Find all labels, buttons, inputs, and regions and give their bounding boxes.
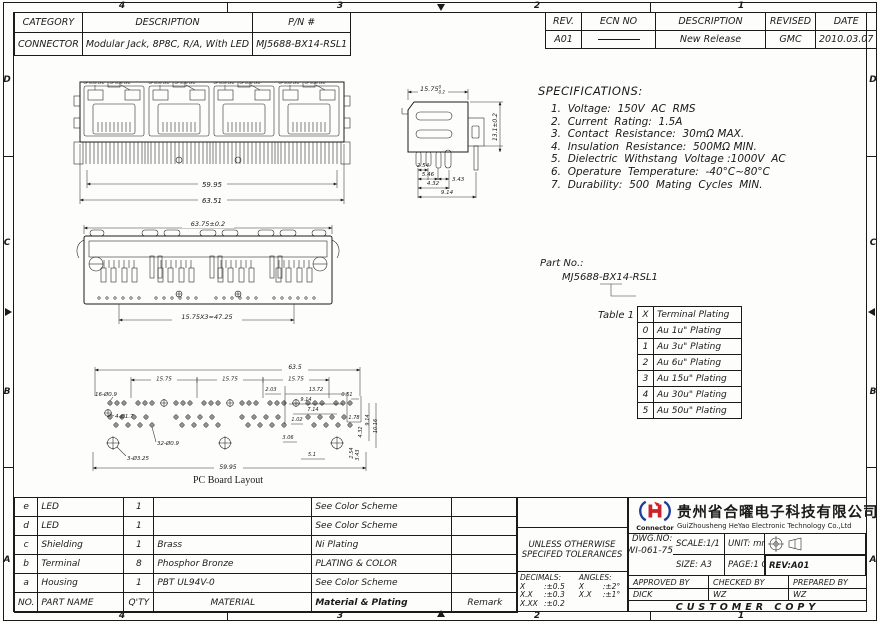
signature-grid: APPROVED BY CHECKED BY PREPARED BY DICK … xyxy=(629,576,866,601)
spec-item: 3. Contact Resistance: 30mΩ MAX. xyxy=(551,128,786,141)
table1-val: Au 1u" Plating xyxy=(654,323,742,339)
approved-by-value: DICK xyxy=(629,589,709,601)
table1-key: 4 xyxy=(638,387,654,403)
center-mark-arrow xyxy=(437,4,445,11)
svg-text:OPTION LED: OPTION LED xyxy=(305,81,326,85)
spec-item: 6. Operature Temperature: -40°C~80°C xyxy=(551,166,786,179)
table1-key: 1 xyxy=(638,339,654,355)
zone-tick xyxy=(3,467,13,468)
zone-left-d: D xyxy=(2,75,12,85)
rev-cell: REV:A01 xyxy=(765,555,866,576)
svg-text:OPTION LED: OPTION LED xyxy=(175,81,196,85)
zone-bottom-2: 2 xyxy=(532,611,542,621)
bom-header-plating: Material & Plating xyxy=(312,593,452,613)
bom-remark xyxy=(452,517,518,536)
part-no-label: Part No.: xyxy=(540,258,584,269)
zone-tick xyxy=(227,2,228,12)
revised-header: REVISED xyxy=(766,13,816,31)
pcb-layout-drawing: 63.5 15.75 15.75 15.75 59.95 2.03 13.72 … xyxy=(85,356,380,488)
bom-material: Phosphor Bronze xyxy=(154,555,312,574)
rear-view-drawing: 63.75±0.2 15.75X3=47.25 xyxy=(62,216,354,340)
bom-plating: PLATING & COLOR xyxy=(312,555,452,574)
bom-row: e LED 1 See Color Scheme xyxy=(15,498,518,517)
bom-no: b xyxy=(15,555,38,574)
svg-text:OPTION LED: OPTION LED xyxy=(110,81,131,85)
zone-top-1: 1 xyxy=(736,1,746,11)
tolerance-spacer xyxy=(517,498,627,528)
size-cell: SIZE: A3 xyxy=(673,555,725,576)
prepared-by-label: PREPARED BY xyxy=(789,576,866,589)
table1-val: Au 6u" Plating xyxy=(654,355,742,371)
table1-key: 0 xyxy=(638,323,654,339)
part-no-leader xyxy=(556,282,676,308)
spec-item: 4. Insulation Resistance: 500MΩ MIN. xyxy=(551,141,786,154)
bom-header-remark: Remark xyxy=(452,593,518,613)
bom-row: c Shielding 1 Brass Ni Plating xyxy=(15,536,518,555)
approved-by-label: APPROVED BY xyxy=(629,576,709,589)
bom-part: Shielding xyxy=(38,536,124,555)
tolerance-block: UNLESS OTHERWISE SPECIFED TOLERANCES DEC… xyxy=(516,497,628,612)
bom-material xyxy=(154,517,312,536)
rear-dim-pitch: 15.75X3=47.25 xyxy=(181,313,232,321)
zone-right-d: D xyxy=(868,75,878,85)
tolerance-title: UNLESS OTHERWISE SPECIFED TOLERANCES xyxy=(517,528,627,572)
specifications-title: SPECIFICATIONS: xyxy=(538,84,786,98)
checked-by-label: CHECKED BY xyxy=(709,576,789,589)
bom-qty: 1 xyxy=(124,574,154,593)
zone-tick xyxy=(650,612,651,621)
bom-qty: 1 xyxy=(124,517,154,536)
bom-remark xyxy=(452,555,518,574)
side-view-drawing: 15.750-0.2 13.1±0.2 2.54 5.46 3.43 4.32 … xyxy=(388,80,524,220)
bom-qty: 8 xyxy=(124,555,154,574)
customer-copy-banner: CUSTOMER COPY xyxy=(629,601,866,613)
company-name-cn: 贵州省合曜电子科技有限公司 xyxy=(677,501,879,522)
svg-text:OPTION LED: OPTION LED xyxy=(240,81,261,85)
logo-text: Connector xyxy=(633,524,677,532)
description-value: Modular Jack, 8P8C, R/A, With LED xyxy=(82,33,252,56)
pcb-dim: 7.14 xyxy=(307,407,318,413)
bom-qty: 1 xyxy=(124,536,154,555)
table1-key: 2 xyxy=(638,355,654,371)
zone-top-4: 4 xyxy=(117,1,127,11)
scale-cell: SCALE:1/1 xyxy=(673,534,725,555)
pn-header: P/N # xyxy=(253,13,351,33)
table1-caption: Table 1 xyxy=(598,310,634,321)
bom-part: LED xyxy=(38,498,124,517)
pcb-dim-pitch-1: 15.75 xyxy=(156,377,172,383)
bom-part: Terminal xyxy=(38,555,124,574)
side-dim-4: 4.32 xyxy=(427,181,440,187)
bom-no: d xyxy=(15,517,38,536)
pcb-dim: 1.02 xyxy=(291,417,302,423)
pcb-dim: 5.1 xyxy=(308,452,316,458)
pcb-dim-v: 3.43 xyxy=(355,449,361,460)
bom-part: Housing xyxy=(38,574,124,593)
side-dim-2: 5.46 xyxy=(422,172,435,178)
bom-plating: See Color Scheme xyxy=(312,574,452,593)
zone-right-a: A xyxy=(868,555,878,565)
zone-right-c: C xyxy=(868,238,878,248)
svg-text:OPTION LED: OPTION LED xyxy=(84,81,105,85)
page-cell: PAGE:1 OF 1 xyxy=(725,555,765,576)
title-block-grid: SCALE:1/1 UNIT: mm DWG.NO: WI-061-751 SI… xyxy=(629,534,866,576)
bom-no: a xyxy=(15,574,38,593)
pcb-holes-32: 32-Ø0.9 xyxy=(157,440,180,447)
rev-desc-header: DESCRIPTION xyxy=(656,13,766,31)
bom-remark xyxy=(452,574,518,593)
pcb-holes-16: 16-Ø0.9 xyxy=(95,391,118,398)
bom-remark xyxy=(452,536,518,555)
pcb-dim-v: 9.14 xyxy=(365,414,371,425)
table1-val: Au 30u" Plating xyxy=(654,387,742,403)
pcb-dim-pitch-2: 15.75 xyxy=(222,377,238,383)
pcb-dim: 1.78 xyxy=(348,415,359,421)
bom-header-no: NO. xyxy=(15,593,38,613)
svg-text:OPTION LED: OPTION LED xyxy=(279,81,300,85)
category-header: CATEGORY xyxy=(15,13,83,33)
revision-table: REV. ECN NO DESCRIPTION REVISED DATE A01… xyxy=(545,12,877,49)
zone-top-3: 3 xyxy=(335,1,345,11)
zone-left-c: C xyxy=(2,238,12,248)
bom-plating: See Color Scheme xyxy=(312,517,452,536)
ecn-value xyxy=(582,31,656,49)
specifications: SPECIFICATIONS: 1. Voltage: 150V AC RMS … xyxy=(538,84,786,191)
pcb-holes-4: 4-Ø1.7 xyxy=(115,413,134,420)
third-angle-projection-icon xyxy=(768,536,804,552)
bom-header-part: PART NAME xyxy=(38,593,124,613)
title-block: Connector 贵州省合曜电子科技有限公司 GuiZhousheng HeY… xyxy=(628,497,867,612)
pcb-holes-3: 3-Ø3.25 xyxy=(127,455,150,462)
bom-no: e xyxy=(15,498,38,517)
svg-text:OPTION LED: OPTION LED xyxy=(149,81,170,85)
company-name-en: GuiZhousheng HeYao Electronic Technology… xyxy=(677,522,879,530)
description-header: DESCRIPTION xyxy=(82,13,252,33)
table1-key: X xyxy=(638,307,654,323)
spec-item: 1. Voltage: 150V AC RMS xyxy=(551,103,786,116)
front-view-drawing: OPTION LEDOPTION LED OPTION LEDOPTION LE… xyxy=(68,80,356,220)
pcb-dim-total-bottom: 59.95 xyxy=(219,464,236,471)
bom-table: e LED 1 See Color Scheme d LED 1 See Col… xyxy=(14,497,518,613)
side-dim-1: 2.54 xyxy=(417,163,430,169)
dwg-label: DWG.NO: xyxy=(632,534,672,544)
bom-no: c xyxy=(15,536,38,555)
zone-left-b: B xyxy=(2,387,12,397)
front-dim-inner: 59.95 xyxy=(202,181,223,189)
ecn-dash xyxy=(598,39,640,40)
rev-header: REV. xyxy=(546,13,582,31)
pcb-caption: PC Board Layout xyxy=(193,475,263,486)
front-dim-outer: 63.51 xyxy=(202,197,222,205)
side-dim-3: 3.43 xyxy=(452,177,465,183)
pcb-dim: 13.72 xyxy=(309,387,323,393)
pcb-dim-v: 4.32 xyxy=(358,426,364,437)
bom-material: Brass xyxy=(154,536,312,555)
zone-tick xyxy=(3,156,13,157)
dwg-no-cell: DWG.NO: WI-061-751 xyxy=(629,534,673,576)
bom-part: LED xyxy=(38,517,124,536)
ecn-header: ECN NO xyxy=(582,13,656,31)
tolerance-title-line1: UNLESS OTHERWISE xyxy=(528,540,615,550)
projection-symbol-cell xyxy=(765,534,866,555)
table1-key: 5 xyxy=(638,403,654,419)
rev-desc-value: New Release xyxy=(656,31,766,49)
pcb-dim-v: 10.16 xyxy=(373,419,379,433)
bom-qty: 1 xyxy=(124,498,154,517)
pcb-dim: 0.51 xyxy=(341,392,352,398)
table1-val: Au 3u" Plating xyxy=(654,339,742,355)
zone-tick xyxy=(867,156,877,157)
table1-val: Terminal Plating xyxy=(654,307,742,323)
checked-by-value: WZ xyxy=(709,589,789,601)
pn-value: MJ5688-BX14-RSL1 xyxy=(253,33,351,56)
spec-item: 2. Current Rating: 1.5A xyxy=(551,116,786,129)
table1-val: Au 50u" Plating xyxy=(654,403,742,419)
side-dim-height: 13.1±0.2 xyxy=(492,113,499,141)
bom-row: d LED 1 See Color Scheme xyxy=(15,517,518,536)
plating-table: XTerminal Plating 0Au 1u" Plating 1Au 3u… xyxy=(637,306,742,419)
bom-row: b Terminal 8 Phosphor Bronze PLATING & C… xyxy=(15,555,518,574)
tolerance-values: DECIMALS: X:±0.5 X.X:±0.3 X.XX:±0.2 ANGL… xyxy=(517,572,627,610)
drawing-sheet: 4 3 2 1 4 3 2 1 D C B A D C B A CATEGORY… xyxy=(0,0,880,623)
part-id-table: CATEGORY DESCRIPTION P/N # CONNECTOR Mod… xyxy=(14,12,351,56)
bom-header-material: MATERIAL xyxy=(154,593,312,613)
tolerance-title-line2: SPECIFED TOLERANCES xyxy=(522,550,623,560)
zone-tick xyxy=(867,467,877,468)
pcb-dim-pitch-3: 15.75 xyxy=(288,377,304,383)
zone-right-b: B xyxy=(868,387,878,397)
table1-val: Au 15u" Plating xyxy=(654,371,742,387)
unit-cell: UNIT: mm xyxy=(725,534,765,555)
company-logo-icon xyxy=(633,499,677,523)
company-header: Connector 贵州省合曜电子科技有限公司 GuiZhousheng HeY… xyxy=(629,498,866,534)
table1-key: 3 xyxy=(638,371,654,387)
bom-material xyxy=(154,498,312,517)
spec-item: 7. Durability: 500 Mating Cycles MIN. xyxy=(551,179,786,192)
zone-top-2: 2 xyxy=(532,1,542,11)
bom-plating: Ni Plating xyxy=(312,536,452,555)
pcb-dim-total-top: 63.5 xyxy=(288,364,302,371)
date-header: DATE xyxy=(816,13,877,31)
zone-tick xyxy=(227,612,228,621)
spec-item: 5. Dielectric Withstang Voltage :1000V A… xyxy=(551,153,786,166)
bom-remark xyxy=(452,498,518,517)
bom-row: a Housing 1 PBT UL94V-0 See Color Scheme xyxy=(15,574,518,593)
prepared-by-value: WZ xyxy=(789,589,866,601)
bom-material: PBT UL94V-0 xyxy=(154,574,312,593)
zone-tick xyxy=(650,2,651,12)
bom-header-row: NO. PART NAME Q'TY MATERIAL Material & P… xyxy=(15,593,518,613)
dwg-no-value: WI-061-751 xyxy=(629,546,673,556)
pcb-dim: 9.14 xyxy=(300,397,311,403)
revised-value: GMC xyxy=(766,31,816,49)
date-value: 2010.03.07 xyxy=(816,31,877,49)
rev-value: A01 xyxy=(546,31,582,49)
svg-text:OPTION LED: OPTION LED xyxy=(214,81,235,85)
pcb-dim: 2.03 xyxy=(265,387,276,393)
bom-header-qty: Q'TY xyxy=(124,593,154,613)
side-dim-5: 9.14 xyxy=(441,190,454,196)
bom-plating: See Color Scheme xyxy=(312,498,452,517)
zone-left-a: A xyxy=(2,555,12,565)
pcb-dim: 3.06 xyxy=(282,435,293,441)
center-mark-arrow xyxy=(5,308,12,316)
category-value: CONNECTOR xyxy=(15,33,83,56)
center-mark-arrow xyxy=(868,308,875,316)
rear-dim-top: 63.75±0.2 xyxy=(191,220,225,228)
